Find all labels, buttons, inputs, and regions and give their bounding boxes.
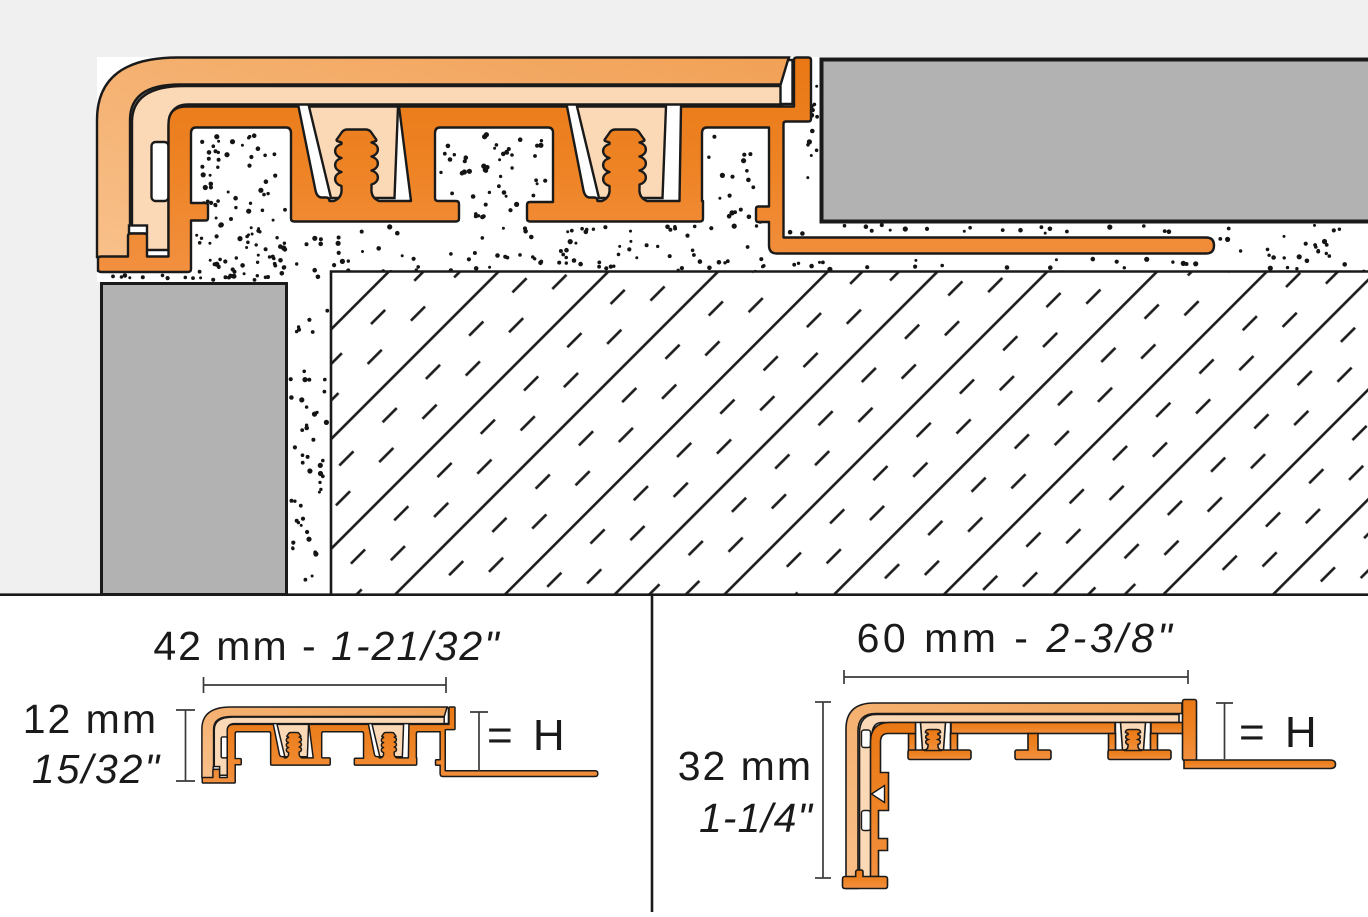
- svg-text:60 mm - 2-3/8": 60 mm - 2-3/8": [857, 615, 1176, 661]
- svg-text:32 mm: 32 mm: [678, 743, 813, 789]
- svg-text:15/32": 15/32": [32, 746, 162, 792]
- svg-text:= H: = H: [1239, 708, 1321, 757]
- svg-text:12 mm: 12 mm: [23, 696, 158, 742]
- svg-text:42 mm - 1-21/32": 42 mm - 1-21/32": [153, 623, 501, 669]
- svg-text:1-1/4": 1-1/4": [699, 795, 814, 841]
- svg-text:= H: = H: [487, 711, 569, 760]
